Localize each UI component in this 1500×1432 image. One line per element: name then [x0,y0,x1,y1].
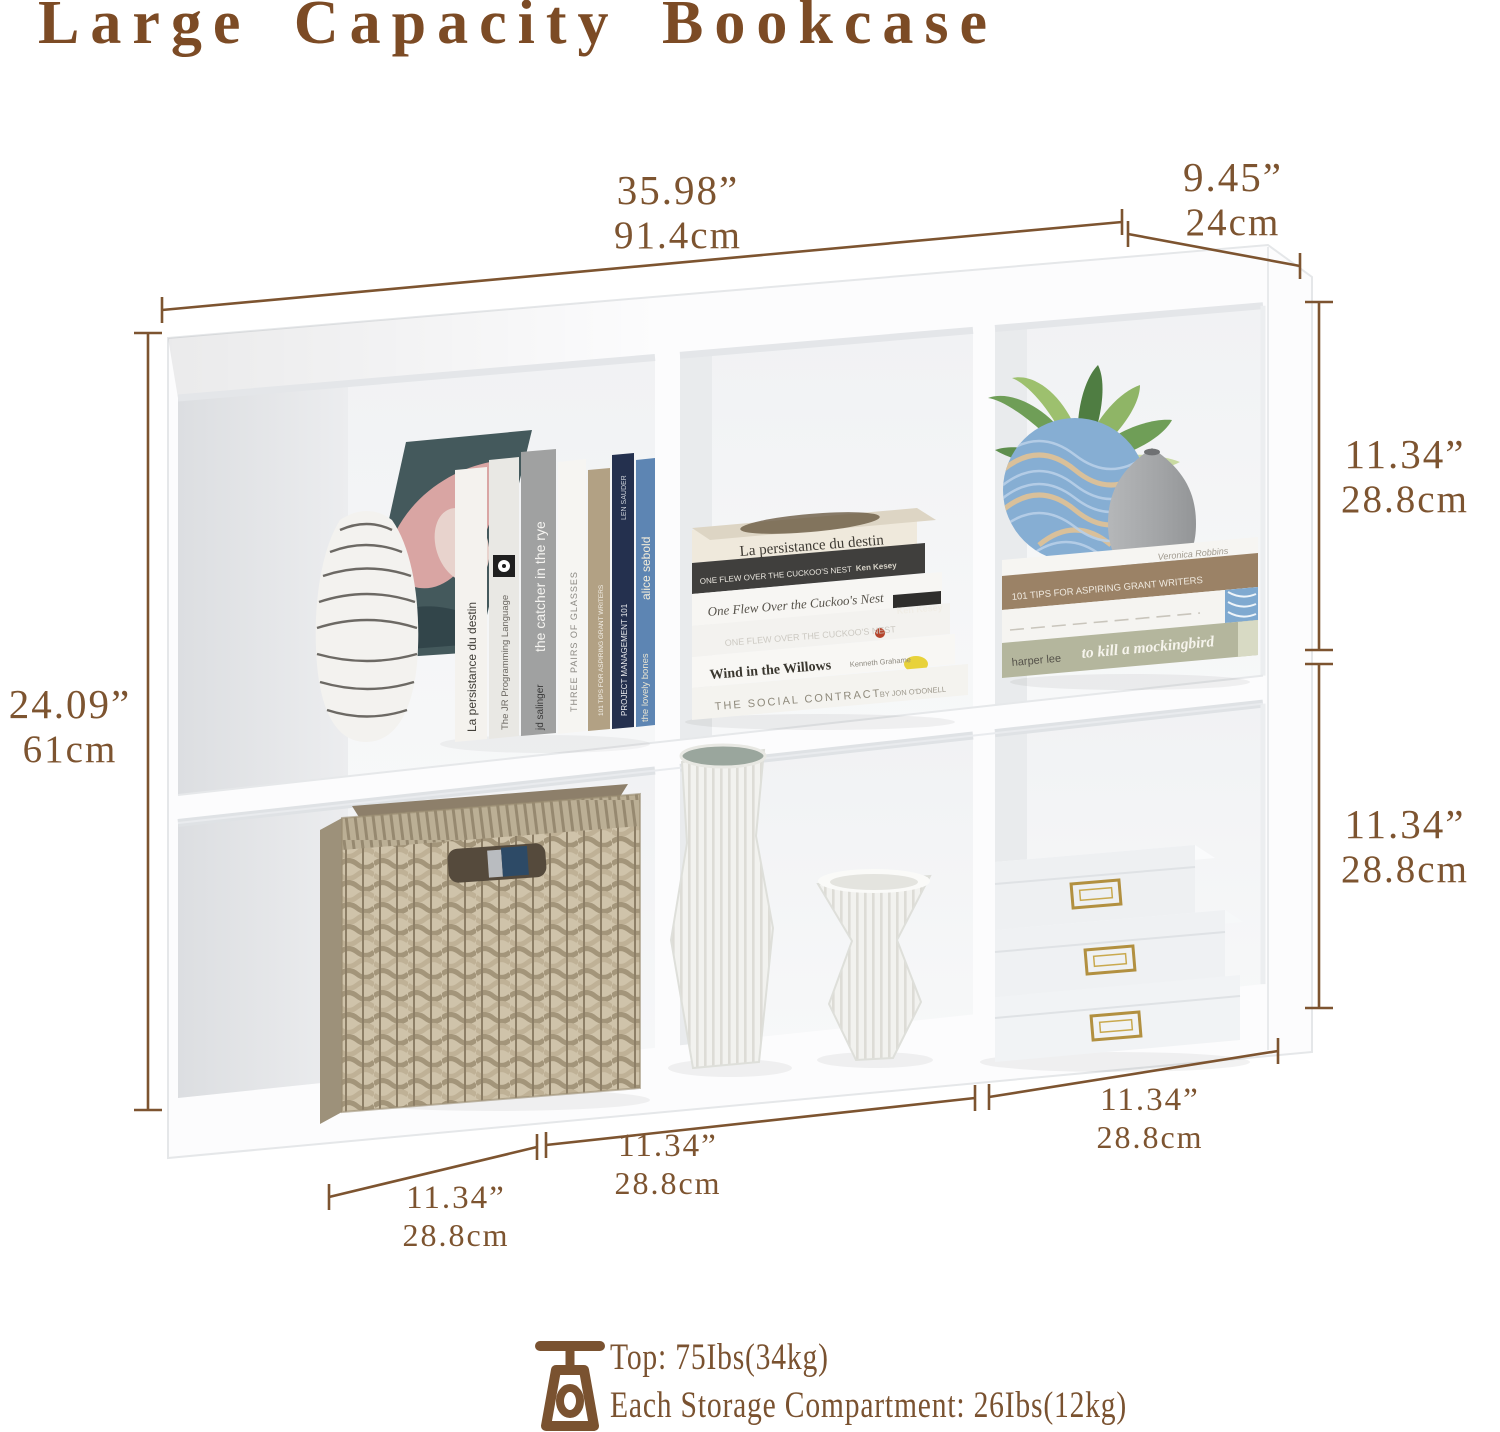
tall-ribbed-vase [671,745,773,1068]
depth-dimension-label: 9.45” 24cm [1183,155,1283,245]
compartment-width-middle-label: 11.34” 28.8cm [614,1128,721,1202]
svg-text:the catcher in the rye: the catcher in the rye [532,521,548,652]
svg-text:alice sebold: alice sebold [639,537,653,600]
compartment-height-top-label: 11.34” 28.8cm [1341,432,1469,522]
svg-text:THREE PAIRS OF GLASSES: THREE PAIRS OF GLASSES [569,571,579,712]
svg-text:LEN SAUDER: LEN SAUDER [621,475,628,520]
bookcase-infographic: Large Capacity Bookcase [0,0,1500,1432]
svg-text:the lovely bones: the lovely bones [640,653,651,722]
compartment-width-right-label: 11.34” 28.8cm [1096,1082,1203,1156]
svg-text:The JR Programming Language: The JR Programming Language [500,595,511,730]
svg-text:La persistance du destin: La persistance du destin [465,602,479,732]
compartment-height-bottom-label: 11.34” 28.8cm [1341,802,1469,892]
wicker-basket [320,784,650,1124]
basket-handle [447,843,547,884]
book-spines: La persistance du destin The JR Programm… [455,449,655,742]
svg-text:PROJECT MANAGEMENT 101: PROJECT MANAGEMENT 101 [620,603,629,716]
svg-text:jd salinger: jd salinger [535,684,546,731]
width-dimension-label: 35.98” 91.4cm [614,168,742,258]
scale-icon [540,1346,600,1426]
striped-vase [316,511,419,742]
compartment-width-left-label: 11.34” 28.8cm [402,1180,509,1254]
top-capacity-text: Top: 75Ibs(34kg) [610,1336,883,1379]
height-dimension-label: 24.09” 61cm [9,682,131,772]
compartment-capacity-text: Each Storage Compartment: 26Ibs(12kg) [610,1384,1256,1427]
dim-line-height [134,333,162,1110]
right-book-stack: Veronica Robbins 101 TIPS FOR ASPIRING G… [1002,537,1258,678]
svg-text:101 TIPS FOR ASPIRING GRANT WR: 101 TIPS FOR ASPIRING GRANT WRITERS [598,584,605,716]
